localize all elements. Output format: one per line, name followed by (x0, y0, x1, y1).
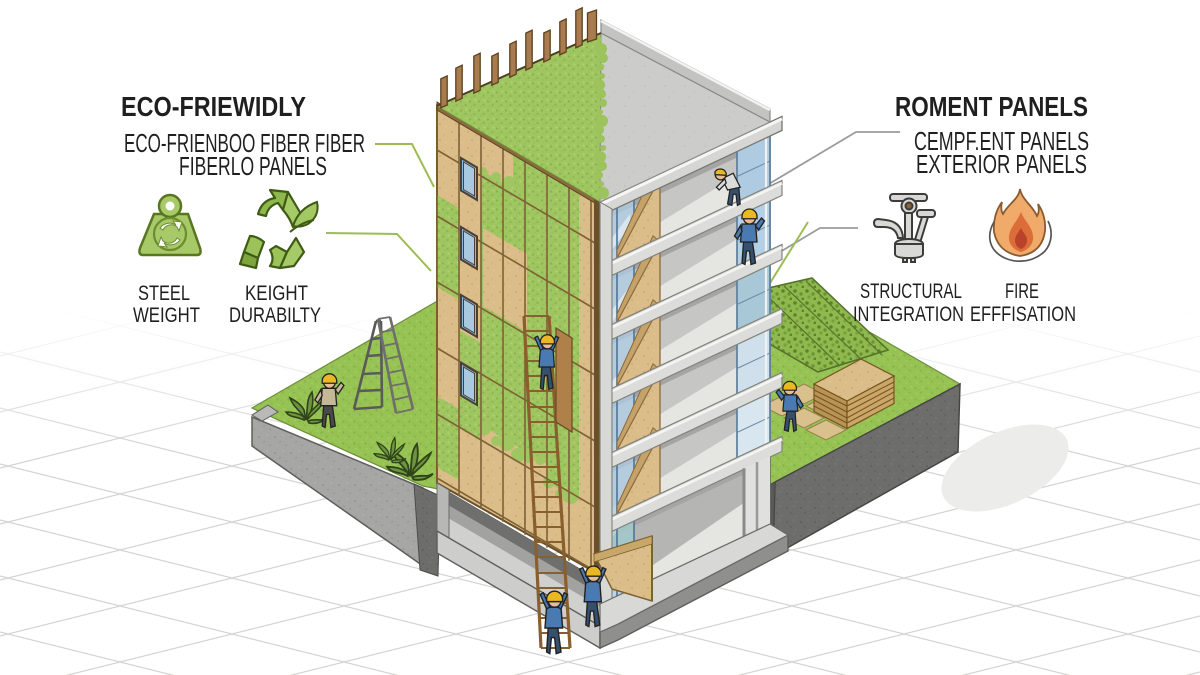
svg-text:STEEL: STEEL (138, 282, 190, 305)
svg-text:FIRE: FIRE (1005, 280, 1039, 303)
svg-text:INTEGRATION: INTEGRATION (853, 303, 964, 326)
svg-text:EXTERIOR PANELS: EXTERIOR PANELS (916, 149, 1087, 179)
svg-text:EFFFISATION: EFFFISATION (970, 303, 1076, 326)
svg-text:ROMENT PANELS: ROMENT PANELS (895, 91, 1088, 122)
svg-text:DURABILTY: DURABILTY (229, 304, 321, 327)
svg-text:WEIGHT: WEIGHT (133, 304, 200, 327)
svg-text:KEIGHT: KEIGHT (245, 282, 308, 305)
svg-text:STRUCTURAL: STRUCTURAL (860, 280, 962, 303)
svg-text:ECO-FRIEWIDLY: ECO-FRIEWIDLY (121, 91, 306, 122)
svg-text:FIBERLO PANELS: FIBERLO PANELS (179, 151, 327, 181)
